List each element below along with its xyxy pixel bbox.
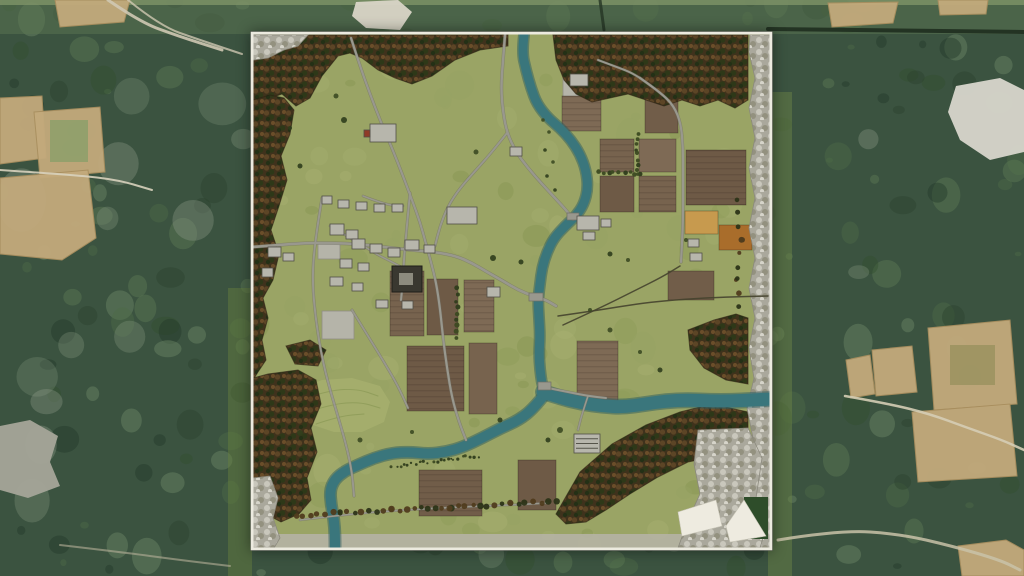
- tree: [521, 500, 527, 506]
- bg-texture-blob: [13, 42, 29, 60]
- tree: [341, 117, 347, 123]
- bg-texture-blob: [180, 454, 193, 465]
- tree: [374, 509, 380, 515]
- building: [356, 202, 367, 210]
- tree: [737, 251, 741, 255]
- tree: [611, 170, 615, 174]
- tree: [469, 456, 472, 459]
- tree: [436, 461, 439, 464]
- bg-texture-blob: [86, 386, 99, 401]
- tree: [322, 512, 328, 518]
- building: [601, 219, 611, 227]
- tree: [433, 505, 439, 511]
- tree: [636, 159, 640, 163]
- bg-texture-blob: [17, 526, 25, 535]
- concrete-pad: [318, 244, 340, 259]
- tree: [297, 430, 303, 436]
- grass-blob: [531, 208, 549, 223]
- field-rows: [686, 150, 746, 205]
- tree: [455, 312, 459, 316]
- tree: [608, 252, 613, 257]
- grass-blob: [345, 80, 355, 87]
- building: [283, 253, 294, 261]
- grass-blob: [293, 312, 309, 325]
- tree: [635, 142, 639, 146]
- grass-blob: [506, 514, 520, 526]
- tree: [456, 293, 460, 297]
- tree: [353, 511, 358, 516]
- bridge: [538, 382, 551, 390]
- tree: [635, 168, 639, 172]
- bg-texture-blob: [848, 45, 855, 50]
- building: [388, 248, 400, 257]
- tree: [334, 94, 339, 99]
- building: [690, 253, 702, 261]
- bg-clearing-patch: [114, 321, 145, 353]
- grass-blob: [518, 381, 529, 388]
- building: [330, 277, 343, 286]
- grass-blob: [631, 332, 656, 364]
- field-rows: [600, 139, 634, 172]
- building: [268, 247, 281, 257]
- grass-blob: [305, 206, 318, 215]
- tree: [300, 514, 305, 519]
- building: [405, 240, 419, 250]
- bg-texture-blob: [156, 66, 183, 89]
- bg-texture-blob: [825, 142, 852, 170]
- bg-texture-blob: [188, 359, 202, 370]
- tree: [638, 350, 642, 354]
- tree: [298, 164, 303, 169]
- tree: [636, 163, 640, 167]
- tree: [635, 151, 639, 155]
- grass-blob: [551, 421, 575, 439]
- grass-blob: [550, 331, 577, 360]
- bg-texture-blob: [823, 78, 835, 88]
- grass-blob: [343, 148, 367, 166]
- bg-clearing-patch: [30, 389, 62, 414]
- bg-texture-blob: [256, 569, 266, 576]
- grass-blob: [340, 171, 352, 181]
- grass-blob: [638, 364, 655, 375]
- bg-clearing-patch: [848, 265, 869, 279]
- tree: [419, 505, 424, 510]
- grass-blob: [498, 182, 514, 200]
- tree: [553, 188, 557, 192]
- grass-blob: [366, 443, 374, 451]
- bg-clearing-patch: [114, 78, 150, 115]
- building: [447, 207, 477, 224]
- tree: [546, 438, 551, 443]
- tree: [456, 458, 459, 461]
- tree: [490, 255, 496, 261]
- tree: [403, 463, 406, 466]
- tree: [396, 466, 398, 468]
- tree: [477, 503, 484, 510]
- bg-texture-blob: [869, 410, 895, 437]
- grass-blob: [364, 517, 380, 528]
- tree: [740, 237, 745, 242]
- tree: [554, 498, 560, 504]
- bg-texture-blob: [893, 106, 905, 114]
- tree: [658, 368, 663, 373]
- bg-texture-blob: [1000, 475, 1020, 494]
- tree: [398, 509, 403, 514]
- tree: [344, 509, 349, 514]
- tree: [406, 464, 409, 467]
- tree: [588, 308, 592, 312]
- bg-texture-blob: [842, 222, 859, 244]
- building: [392, 204, 403, 212]
- building: [583, 232, 595, 240]
- building: [330, 224, 344, 235]
- tree: [596, 169, 601, 174]
- tree: [472, 503, 476, 507]
- bg-texture-blob: [554, 552, 573, 574]
- bg-texture-blob: [805, 485, 825, 500]
- bg-texture-blob: [907, 71, 925, 85]
- tree: [735, 265, 740, 270]
- tree: [543, 148, 547, 152]
- bg-field: [938, 0, 988, 15]
- tree: [456, 503, 461, 508]
- bg-texture-blob: [188, 326, 206, 343]
- bg-texture-blob: [919, 41, 926, 49]
- tree: [390, 465, 393, 468]
- tree: [425, 506, 431, 512]
- tree: [358, 438, 363, 443]
- grass-blob: [392, 230, 401, 242]
- tree: [616, 170, 620, 174]
- grass-blob: [538, 140, 559, 167]
- tree: [439, 506, 444, 511]
- field-rows: [577, 341, 618, 401]
- tree: [508, 501, 513, 506]
- tree: [684, 238, 688, 242]
- bg-texture-blob: [177, 410, 204, 440]
- tree: [381, 508, 387, 514]
- tree: [626, 258, 630, 262]
- bg-texture-blob: [191, 58, 208, 73]
- tree: [540, 501, 545, 506]
- bg-texture-blob: [922, 75, 946, 91]
- grass-blob: [305, 169, 322, 184]
- bg-texture-blob: [893, 563, 902, 569]
- bg-texture-blob: [121, 409, 142, 433]
- tree: [608, 328, 613, 333]
- tree: [545, 498, 552, 505]
- tree: [389, 507, 394, 512]
- tree: [450, 458, 452, 460]
- building-courtyard: [399, 273, 413, 285]
- field: [668, 271, 714, 300]
- field: [469, 343, 497, 414]
- tree: [500, 502, 505, 507]
- field-rows: [639, 176, 676, 212]
- tree: [545, 174, 549, 178]
- map-overview-image: [243, 24, 780, 558]
- bg-texture-blob: [60, 559, 66, 566]
- forest-patch: [553, 35, 748, 108]
- tree: [400, 465, 403, 468]
- bg-texture-blob: [154, 434, 166, 446]
- bg-field-inner: [50, 120, 88, 162]
- map-content: [243, 24, 780, 558]
- bg-tone-strip: [228, 288, 252, 576]
- bg-field-inner: [950, 345, 995, 385]
- tree: [736, 304, 741, 309]
- building: [364, 130, 370, 137]
- bg-texture-blob: [128, 275, 147, 297]
- building: [402, 301, 413, 309]
- bg-texture-blob: [894, 474, 911, 490]
- bg-texture-blob: [80, 522, 89, 529]
- tree: [530, 499, 536, 505]
- tree: [331, 509, 337, 515]
- building: [424, 245, 435, 253]
- tree: [454, 322, 459, 327]
- bg-texture-blob: [105, 565, 113, 574]
- bg-texture-blob: [870, 175, 879, 184]
- tree: [432, 460, 435, 463]
- tree: [735, 198, 740, 203]
- tree: [736, 224, 741, 229]
- tree: [551, 160, 555, 164]
- bg-texture-blob: [9, 79, 19, 89]
- tree: [739, 317, 743, 321]
- bg-clearing-patch: [97, 207, 119, 231]
- map-screenshot-canvas: [0, 0, 1024, 576]
- building: [688, 239, 699, 247]
- bg-field: [912, 404, 1017, 482]
- building: [322, 196, 332, 204]
- grass-blob: [539, 74, 552, 87]
- tree: [735, 276, 740, 281]
- bg-field: [846, 355, 875, 398]
- tree: [517, 502, 522, 507]
- bg-texture-blob: [70, 36, 100, 62]
- bg-texture-blob: [901, 318, 914, 332]
- tree: [736, 290, 742, 296]
- tree: [557, 427, 563, 433]
- grass-blob: [676, 486, 692, 499]
- tree: [446, 505, 452, 511]
- building: [487, 287, 500, 297]
- building: [577, 216, 599, 230]
- bg-texture-blob: [169, 521, 190, 546]
- tree: [491, 502, 497, 508]
- bg-clearing-patch: [198, 83, 246, 126]
- building: [352, 283, 363, 291]
- building: [358, 263, 369, 271]
- field: [685, 211, 718, 234]
- bg-texture-blob: [604, 551, 625, 568]
- bg-texture-blob: [823, 443, 850, 477]
- tree: [426, 462, 428, 464]
- bg-texture-blob: [104, 41, 123, 53]
- building: [570, 74, 588, 86]
- tree: [410, 430, 414, 434]
- tree: [410, 462, 412, 464]
- tree: [483, 504, 489, 510]
- grass-blob: [515, 372, 526, 379]
- tree: [454, 285, 459, 290]
- tree: [602, 171, 606, 175]
- grass-blob: [496, 348, 520, 366]
- bg-texture-blob: [135, 464, 152, 482]
- tree: [519, 260, 524, 265]
- tree: [636, 137, 640, 141]
- building: [374, 204, 385, 212]
- field: [600, 176, 634, 212]
- bg-texture-blob: [154, 340, 181, 357]
- tree: [440, 458, 443, 461]
- tree: [547, 130, 551, 134]
- grass-blob: [310, 147, 328, 166]
- building: [352, 239, 365, 249]
- bg-texture-blob: [807, 411, 819, 419]
- tree: [629, 170, 633, 174]
- tree: [461, 503, 467, 509]
- bg-texture-blob: [876, 36, 887, 48]
- tree: [294, 513, 300, 519]
- building: [370, 244, 382, 253]
- bg-texture-blob: [965, 502, 973, 508]
- bg-clearing-patch: [58, 332, 84, 358]
- bg-texture-blob: [107, 532, 128, 558]
- grass-blob: [469, 418, 480, 428]
- field: [719, 225, 752, 250]
- bg-texture-blob: [940, 38, 962, 59]
- bg-field: [0, 170, 96, 260]
- bg-texture-blob: [201, 173, 228, 203]
- building: [346, 230, 358, 239]
- tree: [464, 454, 467, 457]
- bg-texture-blob: [50, 81, 68, 103]
- tree: [541, 118, 545, 122]
- building: [338, 200, 349, 208]
- tree: [419, 461, 421, 463]
- bg-texture-blob: [22, 262, 32, 273]
- building: [340, 259, 352, 268]
- tree: [623, 171, 628, 176]
- field: [639, 139, 676, 172]
- bg-texture-blob: [150, 204, 169, 223]
- bg-texture-blob: [134, 295, 156, 323]
- bg-texture-blob: [878, 93, 890, 103]
- tree: [308, 513, 314, 519]
- tree: [472, 456, 475, 459]
- tree: [415, 463, 418, 466]
- bg-texture-blob: [78, 306, 98, 325]
- bg-texture-blob: [159, 319, 182, 344]
- tree: [636, 172, 640, 176]
- bg-clearing-patch: [858, 129, 878, 149]
- bg-texture-blob: [91, 66, 117, 95]
- tree: [443, 459, 446, 462]
- bg-texture-blob: [826, 158, 833, 163]
- bg-clearing-patch: [172, 200, 213, 241]
- tree: [735, 210, 740, 215]
- bg-texture-blob: [836, 545, 861, 564]
- tree: [632, 172, 637, 177]
- tree: [455, 336, 459, 340]
- tree: [454, 318, 458, 322]
- bg-texture-blob: [156, 267, 185, 288]
- bg-texture-blob: [1015, 252, 1022, 257]
- bg-texture-blob: [63, 289, 81, 306]
- tree: [413, 506, 418, 511]
- bg-field: [872, 346, 917, 396]
- bg-field: [828, 2, 898, 27]
- bg-texture-blob: [88, 245, 98, 256]
- bg-texture-blob: [161, 472, 185, 493]
- tree: [422, 460, 425, 463]
- tree: [447, 458, 450, 461]
- tree: [454, 300, 457, 303]
- building: [262, 268, 273, 277]
- building: [510, 147, 522, 156]
- tree: [455, 305, 460, 310]
- tree: [452, 459, 454, 461]
- tree: [498, 418, 503, 423]
- tree: [637, 132, 641, 136]
- field-rows: [407, 346, 464, 411]
- tree: [314, 511, 319, 516]
- building: [376, 300, 388, 308]
- tree: [474, 150, 479, 155]
- screenshot-stage: [0, 0, 1024, 576]
- concrete-pad: [322, 311, 354, 339]
- bridge: [529, 293, 543, 301]
- tree: [478, 456, 480, 458]
- bg-texture-blob: [890, 196, 917, 214]
- tree: [288, 126, 292, 130]
- tree: [358, 509, 365, 516]
- bg-texture-blob: [928, 183, 948, 203]
- building: [370, 124, 396, 142]
- tree: [404, 506, 411, 513]
- bg-texture-blob: [994, 56, 1012, 74]
- bg-texture-blob: [842, 81, 850, 87]
- tree: [366, 508, 372, 514]
- grass-blob: [434, 88, 452, 108]
- grass-blob: [450, 234, 468, 254]
- tree: [337, 509, 342, 514]
- tree: [454, 329, 459, 334]
